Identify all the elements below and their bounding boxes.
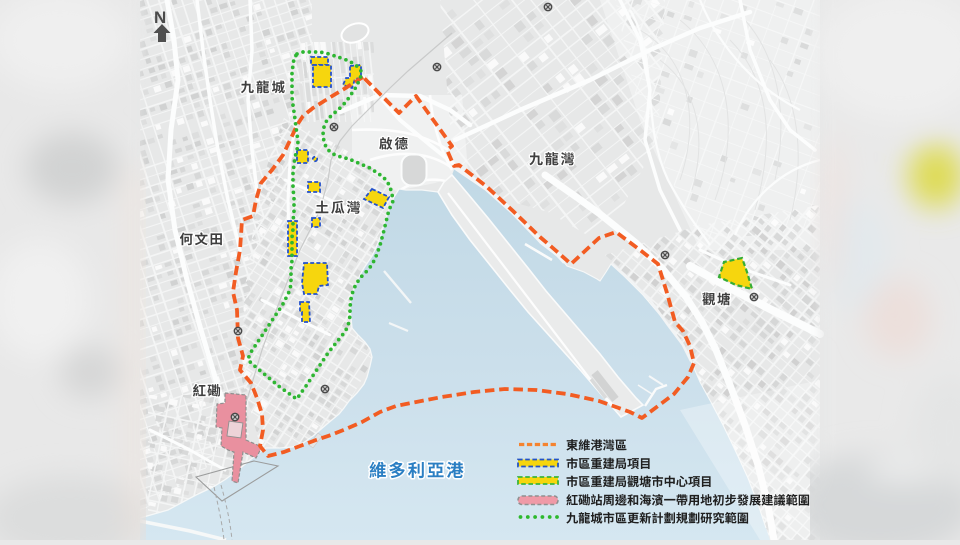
svg-text:N: N — [154, 8, 166, 27]
